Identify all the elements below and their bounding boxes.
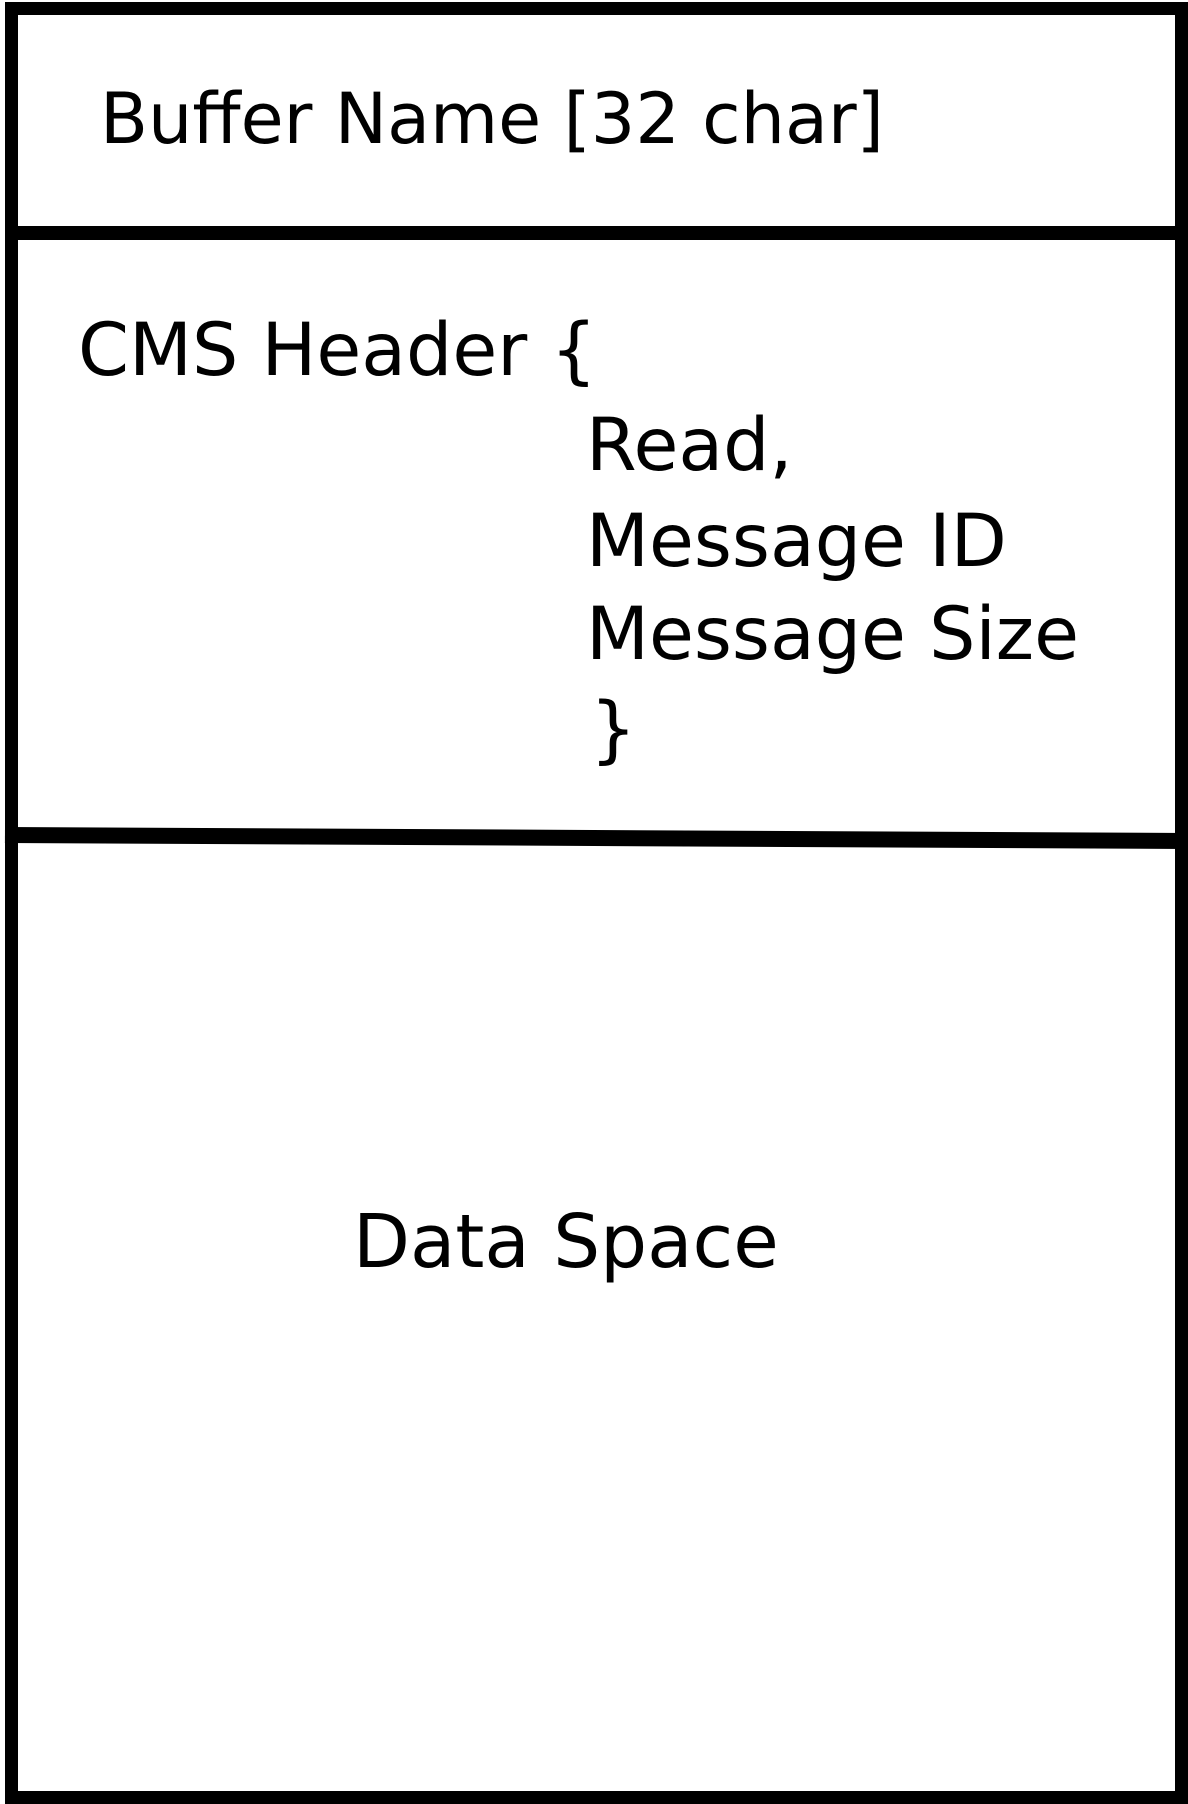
buffer-name-label: Buffer Name [32 char] [100, 84, 884, 154]
shared-memory-buffer-diagram: Buffer Name [32 char] CMS Header { Read,… [0, 0, 1188, 1804]
section-data-space [5, 843, 1188, 1804]
cms-header-open-label: CMS Header { [78, 314, 597, 387]
section-divider-top [5, 226, 1188, 240]
cms-header-field-message-id: Message ID [586, 505, 1007, 578]
cms-header-field-message-size: Message Size [586, 598, 1079, 671]
data-space-label: Data Space [353, 1205, 779, 1279]
cms-header-close-brace: } [590, 693, 636, 766]
cms-header-field-read: Read, [586, 409, 793, 482]
